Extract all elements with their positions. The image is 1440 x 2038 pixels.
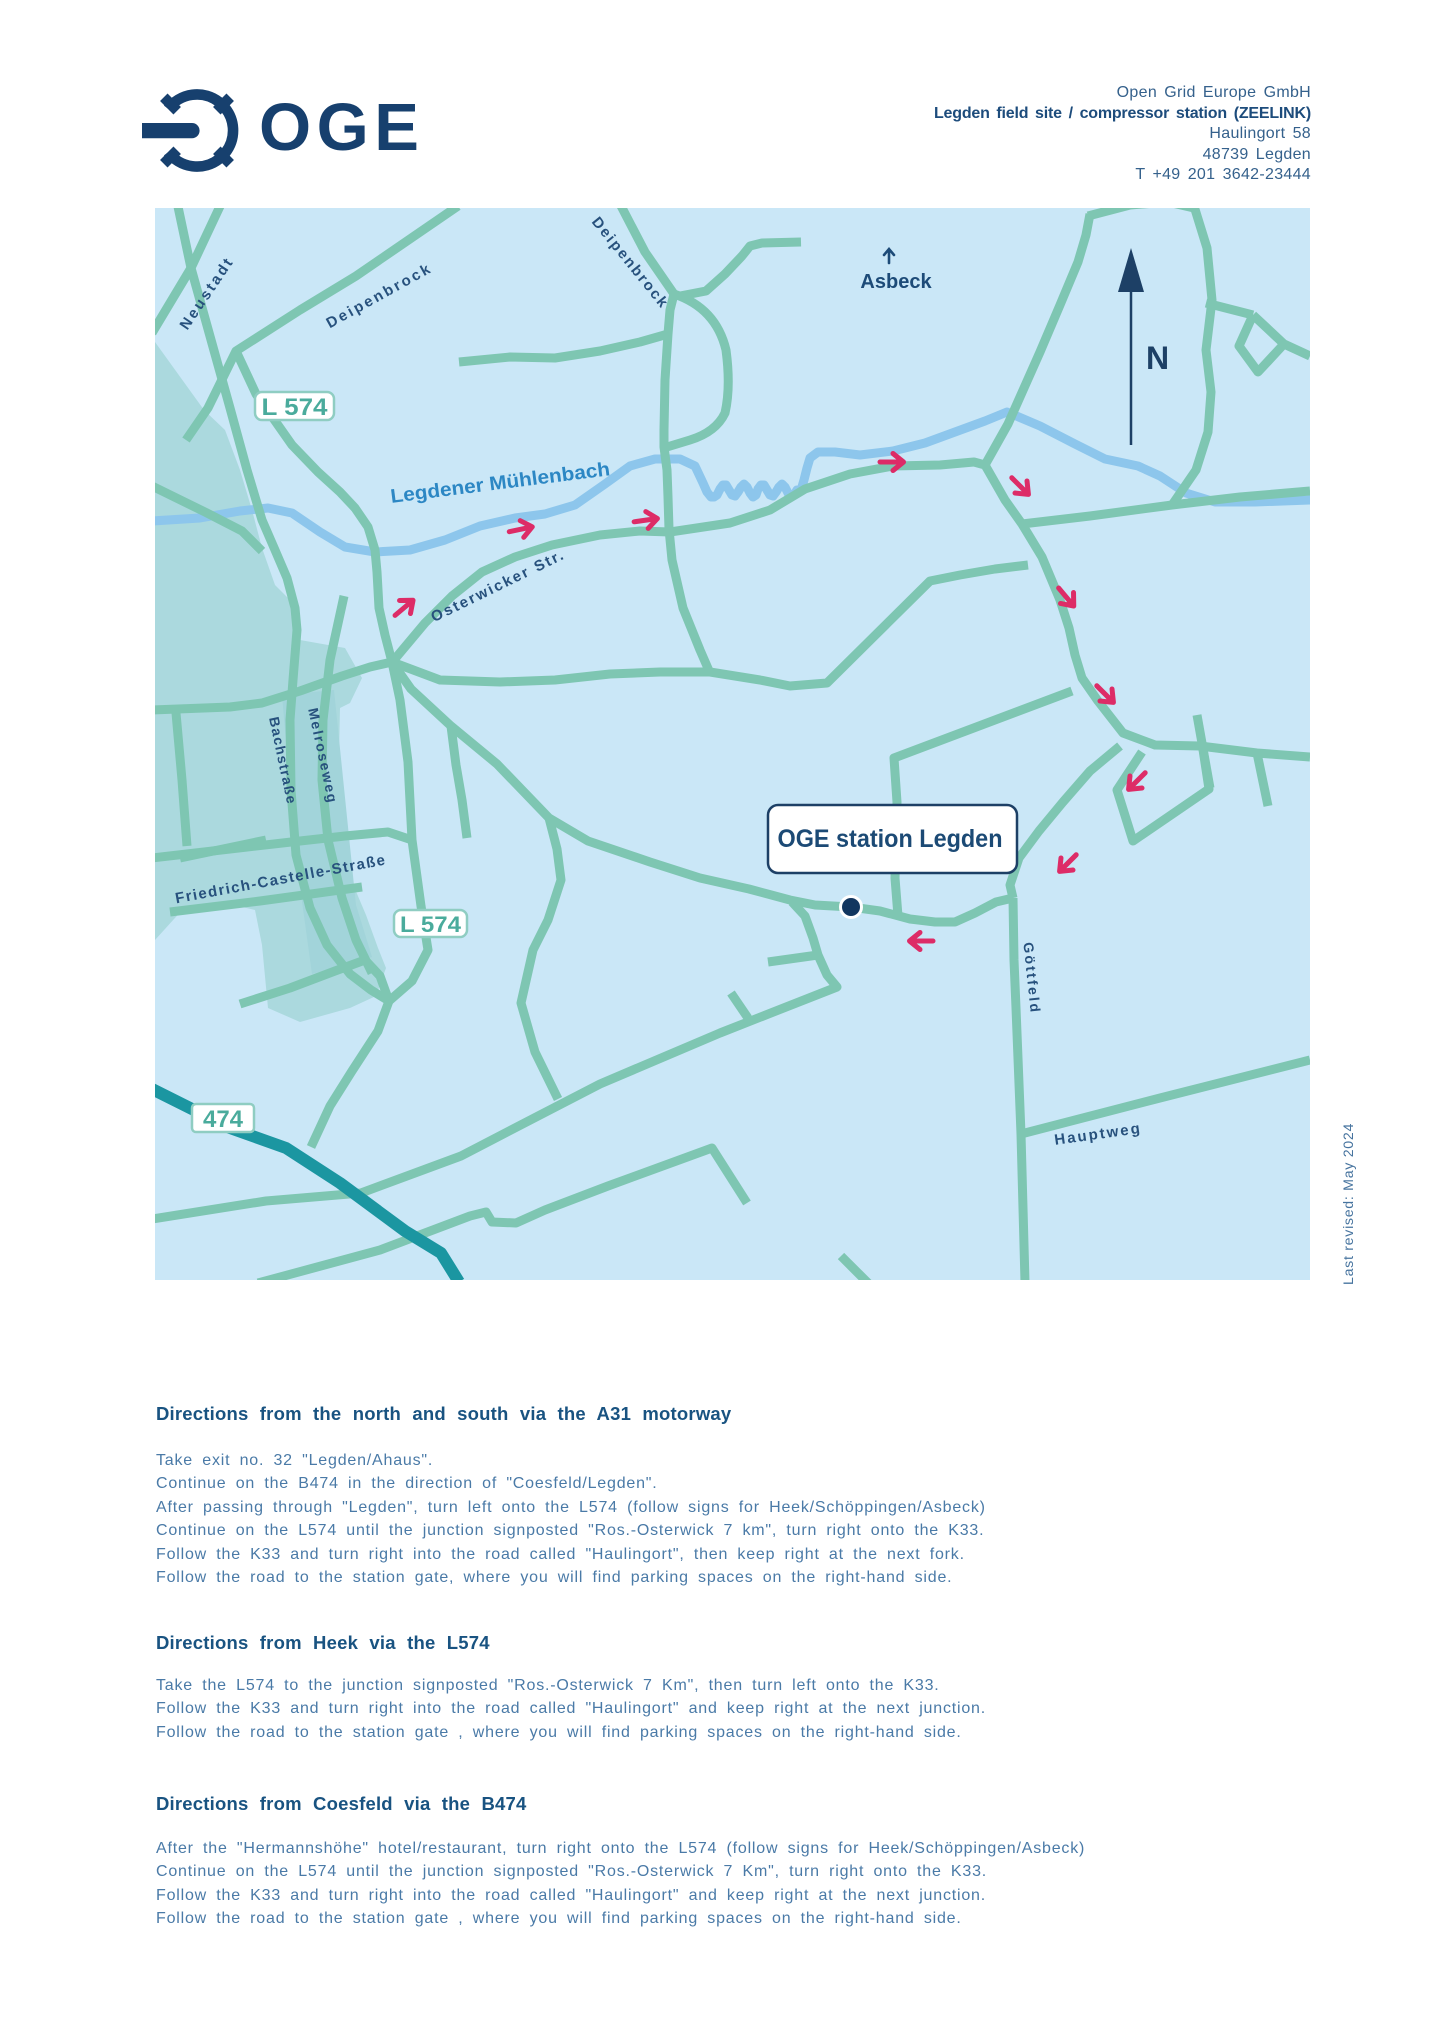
svg-text:N: N: [1146, 340, 1169, 376]
svg-text:474: 474: [203, 1106, 244, 1133]
svg-text:L 574: L 574: [262, 394, 329, 421]
svg-text:L 574: L 574: [400, 912, 462, 937]
svg-text:OGE station Legden: OGE station Legden: [778, 825, 1003, 853]
svg-text:OGE: OGE: [259, 90, 424, 165]
svg-text:Asbeck: Asbeck: [860, 271, 932, 293]
